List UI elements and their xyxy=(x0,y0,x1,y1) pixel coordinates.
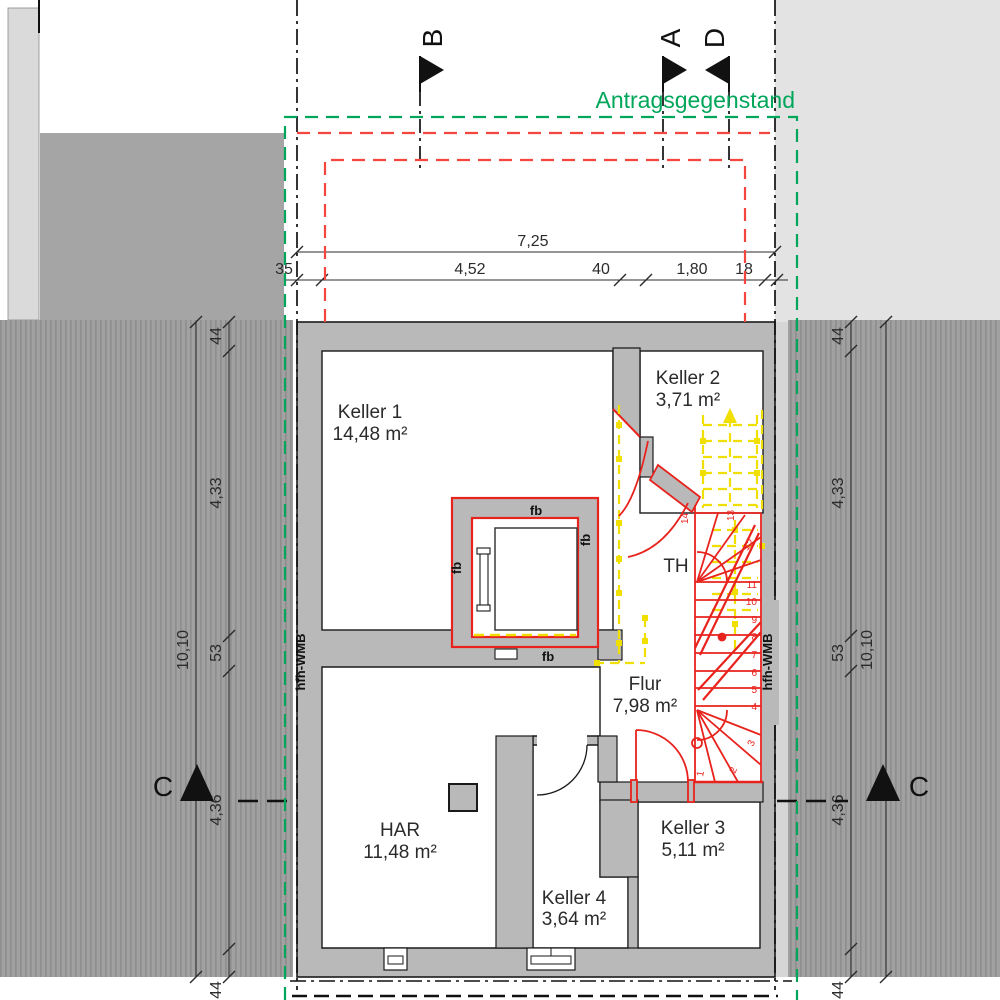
existing-building-left xyxy=(0,320,293,977)
dim-left-44b: 44 xyxy=(208,981,225,999)
label-keller1-name: Keller 1 xyxy=(338,402,402,423)
axis-label-right: hfh-WMB xyxy=(760,633,775,690)
step-7: 7 xyxy=(751,650,757,661)
dim-left-53: 53 xyxy=(208,644,225,662)
neighbor-area-top-right xyxy=(775,0,1000,322)
shaft-bottom-notch xyxy=(495,649,517,659)
label-keller4-name: Keller 4 xyxy=(542,888,607,909)
existing-building-right xyxy=(788,320,1000,977)
dim-right-44a: 44 xyxy=(830,327,847,345)
label-th: TH xyxy=(663,556,688,577)
label-keller3-name: Keller 3 xyxy=(661,818,725,839)
door-jamb-left xyxy=(631,780,637,802)
page-title: Antragsgegenstand xyxy=(596,87,796,113)
stair-newel-dot xyxy=(719,634,726,641)
neighbor-strip-top-left xyxy=(8,8,39,320)
label-keller2-name: Keller 2 xyxy=(656,368,720,389)
axis-label-left: hfh-WMB xyxy=(293,633,308,690)
step-11: 11 xyxy=(747,580,758,591)
step-6: 6 xyxy=(751,668,757,679)
neighbor-block-top-left xyxy=(40,133,284,321)
label-keller1-area: 14,48 m² xyxy=(333,424,408,445)
column xyxy=(449,784,477,811)
section-letter-a: A xyxy=(655,28,686,47)
dim-40: 40 xyxy=(592,261,610,278)
section-letter-b: B xyxy=(417,29,448,48)
wall-k4-k3-lower xyxy=(628,877,638,948)
elevator-shaft: fb fb fb fb xyxy=(449,498,598,664)
label-keller2-area: 3,71 m² xyxy=(656,390,720,411)
label-keller3-area: 5,11 m² xyxy=(661,840,724,861)
door-jamb-right xyxy=(688,780,694,802)
elevator-rail xyxy=(480,552,488,607)
label-har-name: HAR xyxy=(380,820,420,841)
wall-flur-left xyxy=(598,736,617,782)
window-2 xyxy=(527,948,575,970)
step-8: 8 xyxy=(751,632,757,643)
dim-right-44b: 44 xyxy=(830,981,847,999)
rail-cap-top xyxy=(477,548,490,554)
label-har-area: 11,48 m² xyxy=(363,842,437,863)
dim-left-433: 4,33 xyxy=(208,477,225,508)
fb-label-bottom: fb xyxy=(542,649,554,664)
wall-k4-k3-upper xyxy=(600,800,638,877)
dim-right-53: 53 xyxy=(830,644,847,662)
dim-left-total: 10,10 xyxy=(175,630,192,670)
section-letter-d: D xyxy=(699,28,730,48)
floor-plan-page: fb fb fb fb xyxy=(0,0,1000,1000)
section-letter-c-right: C xyxy=(909,771,929,802)
fb-label-left: fb xyxy=(449,562,464,574)
dim-right-433: 4,33 xyxy=(830,477,847,508)
section-flag-b xyxy=(420,56,444,84)
dim-right-436: 4,36 xyxy=(830,794,847,825)
wall-flur-bottom xyxy=(600,782,763,802)
step-5: 5 xyxy=(751,685,757,696)
fb-label-right: fb xyxy=(578,534,593,546)
step-14: 14 xyxy=(680,512,691,524)
dim-180: 1,80 xyxy=(676,261,707,278)
fb-label-top: fb xyxy=(530,503,542,518)
dim-right-total: 10,10 xyxy=(859,630,876,670)
elevator-car xyxy=(495,528,577,630)
section-letter-c-left: C xyxy=(153,771,173,802)
basement-floor-plan: fb fb fb fb xyxy=(0,0,1000,1000)
section-flag-a xyxy=(663,56,687,84)
section-flag-d xyxy=(705,56,729,84)
step-9: 9 xyxy=(751,615,757,626)
label-keller4-area: 3,64 m² xyxy=(542,909,606,930)
rail-cap-bottom xyxy=(477,605,490,611)
dim-top-total: 7,25 xyxy=(517,233,548,250)
label-flur-name: Flur xyxy=(629,674,662,695)
dim-452: 4,52 xyxy=(454,261,485,278)
step-4: 4 xyxy=(751,702,757,713)
dim-left-44a: 44 xyxy=(208,327,225,345)
door-opening-keller4 xyxy=(537,735,587,746)
window-1 xyxy=(384,948,407,970)
label-flur-area: 7,98 m² xyxy=(613,696,677,717)
wall-step-k2 xyxy=(640,437,653,477)
wall-har-k4 xyxy=(496,736,533,948)
step-13: 13 xyxy=(726,509,737,521)
step-10: 10 xyxy=(746,597,758,608)
